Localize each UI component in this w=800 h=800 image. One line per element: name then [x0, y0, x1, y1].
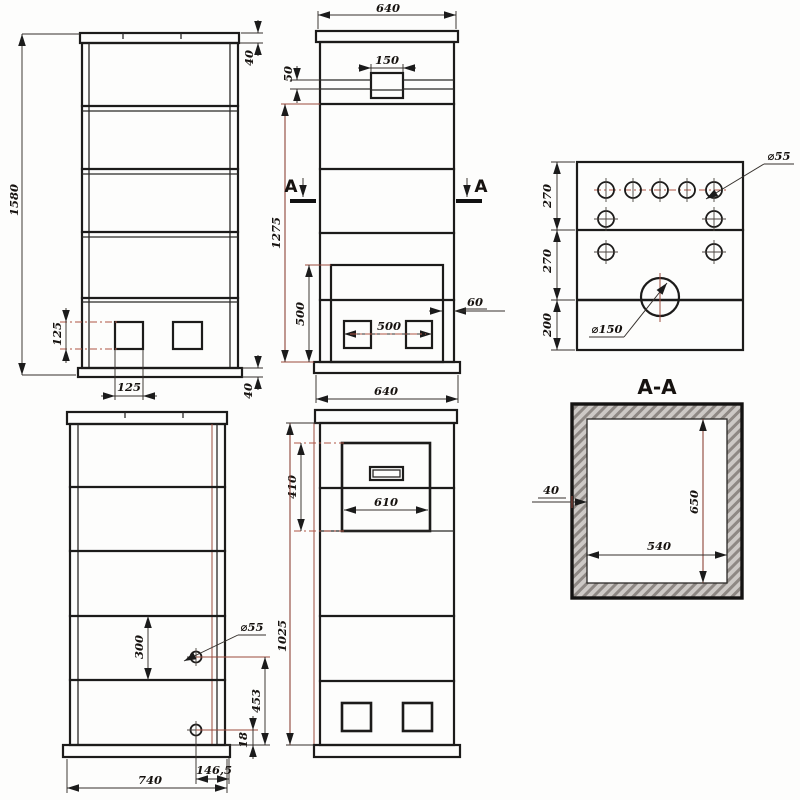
rear-elevation-view: 300 ⌀55 453 18 146,5 740 [63, 412, 270, 793]
front-left-vent-opening [115, 322, 143, 349]
dim-door-width: 610 [344, 495, 428, 510]
dim-plan-row-top-label: 270 [540, 184, 554, 209]
fire-door-handle [370, 467, 403, 480]
dim-valve-width: 150 [358, 53, 416, 72]
rear-base-plinth [63, 745, 230, 757]
side-base-plinth [314, 362, 460, 373]
dim-front-opening-height-label: 125 [50, 322, 64, 346]
side-left-vent-opening [344, 321, 371, 348]
dim-door-zone-height-label: 410 [285, 475, 299, 499]
dim-rear-hole-bottom-offset-label: 18 [236, 732, 250, 748]
dim-section-inner-height-label: 650 [687, 490, 701, 514]
dim-valve-offset-label: 50 [281, 66, 295, 82]
section-title: A-A [637, 375, 677, 399]
dim-side-bottom-width: 640 [316, 375, 458, 403]
dim-rear-hole-height: 453 [249, 657, 265, 745]
dim-front-base-height: 40 [241, 355, 263, 399]
dim-lower-body-height-label: 1025 [275, 620, 289, 652]
front-elevation-view: 1580 40 125 125 40 [7, 20, 263, 400]
section-letter-right: A [474, 177, 488, 197]
section-mark-left: A [284, 177, 316, 201]
lower-left-vent-opening [342, 703, 371, 731]
dim-plan-row-mid-label: 270 [540, 249, 554, 274]
dim-shaft-height-label: 1275 [269, 217, 283, 249]
lower-front-body-outline [320, 423, 454, 745]
rear-body-outline [70, 424, 225, 745]
dim-section-inner-height: 650 [687, 419, 703, 583]
callout-hole-diameter: ⌀55 [706, 149, 794, 199]
dim-front-opening-width: 125 [101, 350, 157, 400]
dim-front-total-height-label: 1580 [7, 184, 21, 216]
callout-flue-diameter: ⌀150 [589, 283, 667, 337]
dim-side-top-width: 640 [318, 1, 456, 29]
top-plan-view: 270 270 200 ⌀55 ⌀150 [540, 149, 794, 350]
dim-rear-band-spacing: 300 [132, 616, 148, 680]
dim-firebox-height-label: 500 [293, 302, 307, 326]
dim-front-opening-width-label: 125 [117, 380, 141, 394]
callout-flue-diameter-line [624, 283, 667, 337]
lower-right-vent-opening [403, 703, 432, 731]
dim-edge-gap-label: 60 [467, 295, 483, 309]
lower-front-top-cap [315, 410, 457, 423]
dim-front-cap-height: 40 [240, 20, 263, 66]
dim-rear-hole-bottom-offset: 18 [236, 716, 253, 759]
lower-front-elevation-view-line [373, 470, 400, 477]
dim-edge-gap: 60 [429, 295, 505, 311]
side-right-vent-opening [406, 321, 432, 348]
section-wall-hatch [572, 404, 742, 598]
front-top-cap [80, 33, 239, 43]
callout-hole-diameter-label: ⌀55 [768, 149, 791, 163]
section-outer-wall [572, 404, 742, 598]
front-body-outline [82, 43, 238, 368]
dim-valve-offset: 50 [281, 66, 320, 103]
dim-plan-rows: 270 270 200 [540, 162, 575, 350]
stove-technical-drawing: 1580 40 125 125 40 [0, 0, 800, 800]
dim-firebox-height: 500 [293, 265, 331, 362]
rear-top-cap [67, 412, 227, 424]
dim-rear-hole-height-label: 453 [249, 689, 263, 713]
dim-valve-width-label: 150 [375, 53, 399, 67]
dim-section-inner-width-label: 540 [647, 539, 671, 553]
drawing-sheet: 1580 40 125 125 40 [0, 0, 800, 800]
dim-side-top-width-label: 640 [376, 1, 400, 15]
dim-front-cap-height-label: 40 [242, 50, 256, 66]
dim-door-width-label: 610 [374, 495, 398, 509]
dim-section-inner-width: 540 [587, 539, 727, 555]
dim-rear-band-spacing-label: 300 [132, 635, 146, 659]
dim-rear-base-width-label: 740 [138, 773, 162, 787]
dim-plan-row-bottom-label: 200 [540, 313, 554, 338]
side-top-cap [316, 31, 458, 42]
dim-front-base-height-label: 40 [241, 383, 255, 399]
dim-section-wall-thickness-label: 40 [543, 483, 559, 497]
damper-slide [371, 73, 403, 98]
lower-front-elevation-view: 610 410 1025 [275, 410, 460, 757]
dim-front-opening-height: 125 [50, 308, 117, 363]
section-letter-left: A [284, 177, 298, 197]
dim-front-total-height: 1580 [7, 34, 80, 375]
lower-front-base-plinth [314, 745, 460, 757]
side-elevation-section-view: 640 150 50 1275 A A 500 500 [269, 1, 505, 403]
section-aa-view: A-A 650 540 40 [532, 375, 742, 598]
front-base-plinth [78, 368, 242, 377]
section-inner-wall [587, 419, 727, 583]
dim-lower-body-height: 1025 [275, 423, 320, 745]
section-mark-right: A [456, 177, 488, 201]
plan-hole-row-three [594, 240, 726, 264]
callout-rear-hole-diameter-label: ⌀55 [241, 620, 264, 634]
plan-hole-row-two [594, 207, 726, 231]
front-right-vent-opening [173, 322, 202, 349]
callout-flue-diameter-label: ⌀150 [592, 322, 623, 336]
dim-vent-spacing-label: 500 [377, 319, 401, 333]
dim-side-bottom-width-label: 640 [374, 384, 398, 398]
